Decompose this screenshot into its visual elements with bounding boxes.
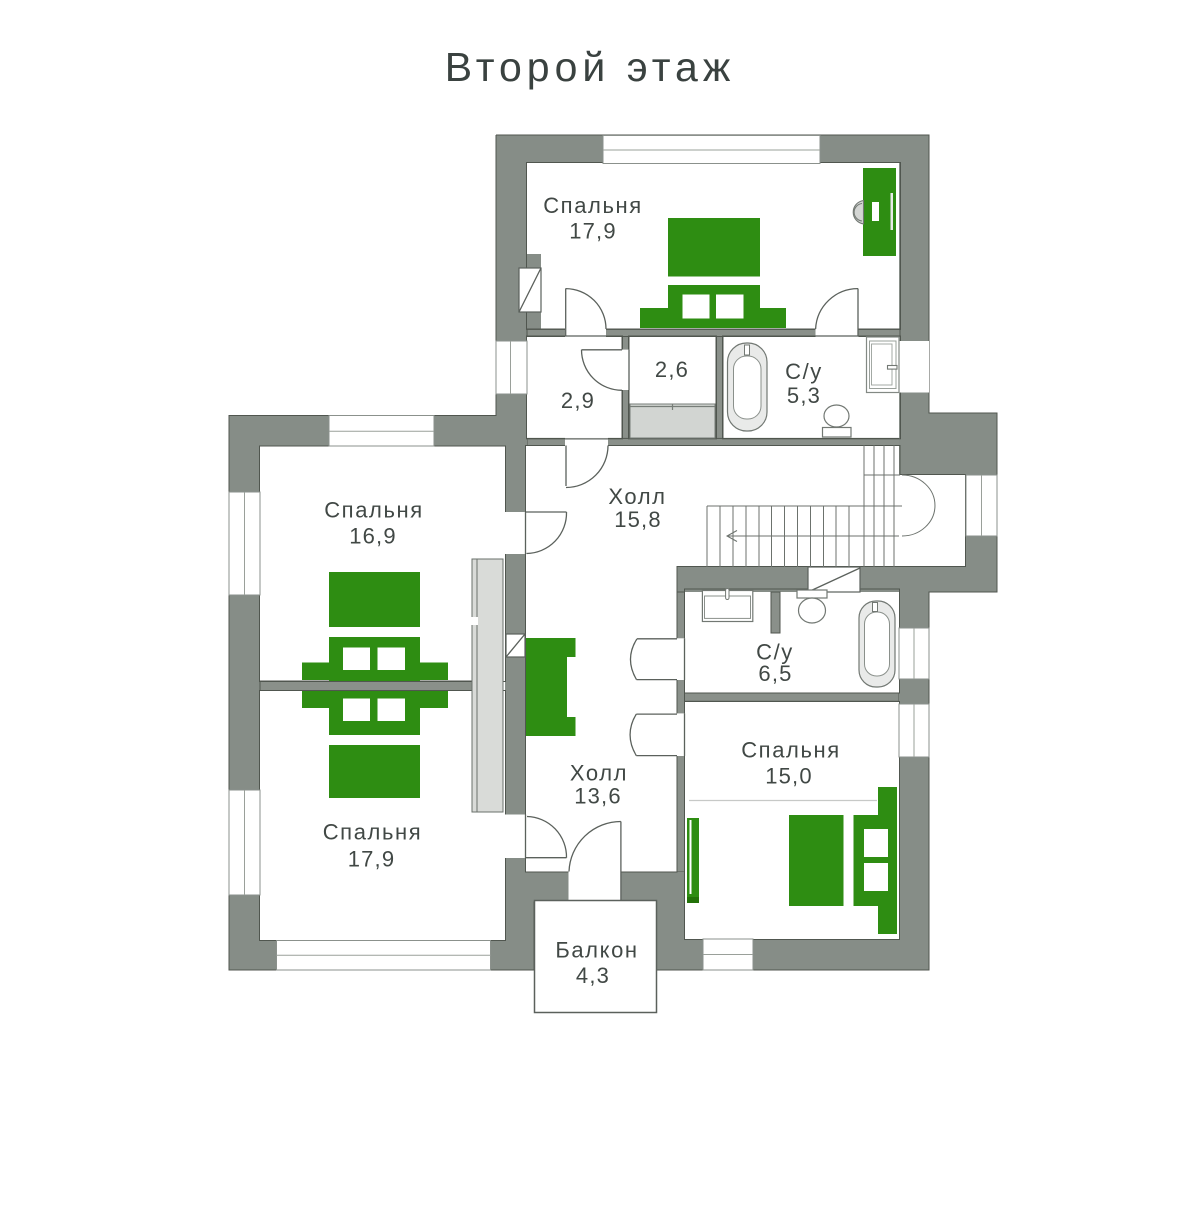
svg-text:15,0: 15,0 [765,764,813,789]
svg-text:Спальня: Спальня [543,193,643,218]
svg-text:13,6: 13,6 [574,784,622,809]
svg-text:15,8: 15,8 [614,507,662,532]
svg-text:2,6: 2,6 [655,357,689,382]
svg-text:17,9: 17,9 [348,847,396,872]
svg-text:Второй этаж: Второй этаж [445,44,736,90]
svg-text:Холл: Холл [570,761,628,786]
svg-text:2,9: 2,9 [561,388,595,413]
svg-text:6,5: 6,5 [758,661,792,686]
svg-text:Спальня: Спальня [324,498,424,523]
svg-text:Спальня: Спальня [323,820,423,845]
svg-text:С/у: С/у [785,359,823,384]
svg-text:Холл: Холл [608,484,666,509]
svg-text:Балкон: Балкон [555,938,638,963]
svg-text:16,9: 16,9 [349,524,397,549]
svg-text:17,9: 17,9 [569,219,617,244]
svg-text:Спальня: Спальня [741,738,841,763]
svg-text:4,3: 4,3 [576,963,610,988]
svg-text:5,3: 5,3 [787,383,821,408]
